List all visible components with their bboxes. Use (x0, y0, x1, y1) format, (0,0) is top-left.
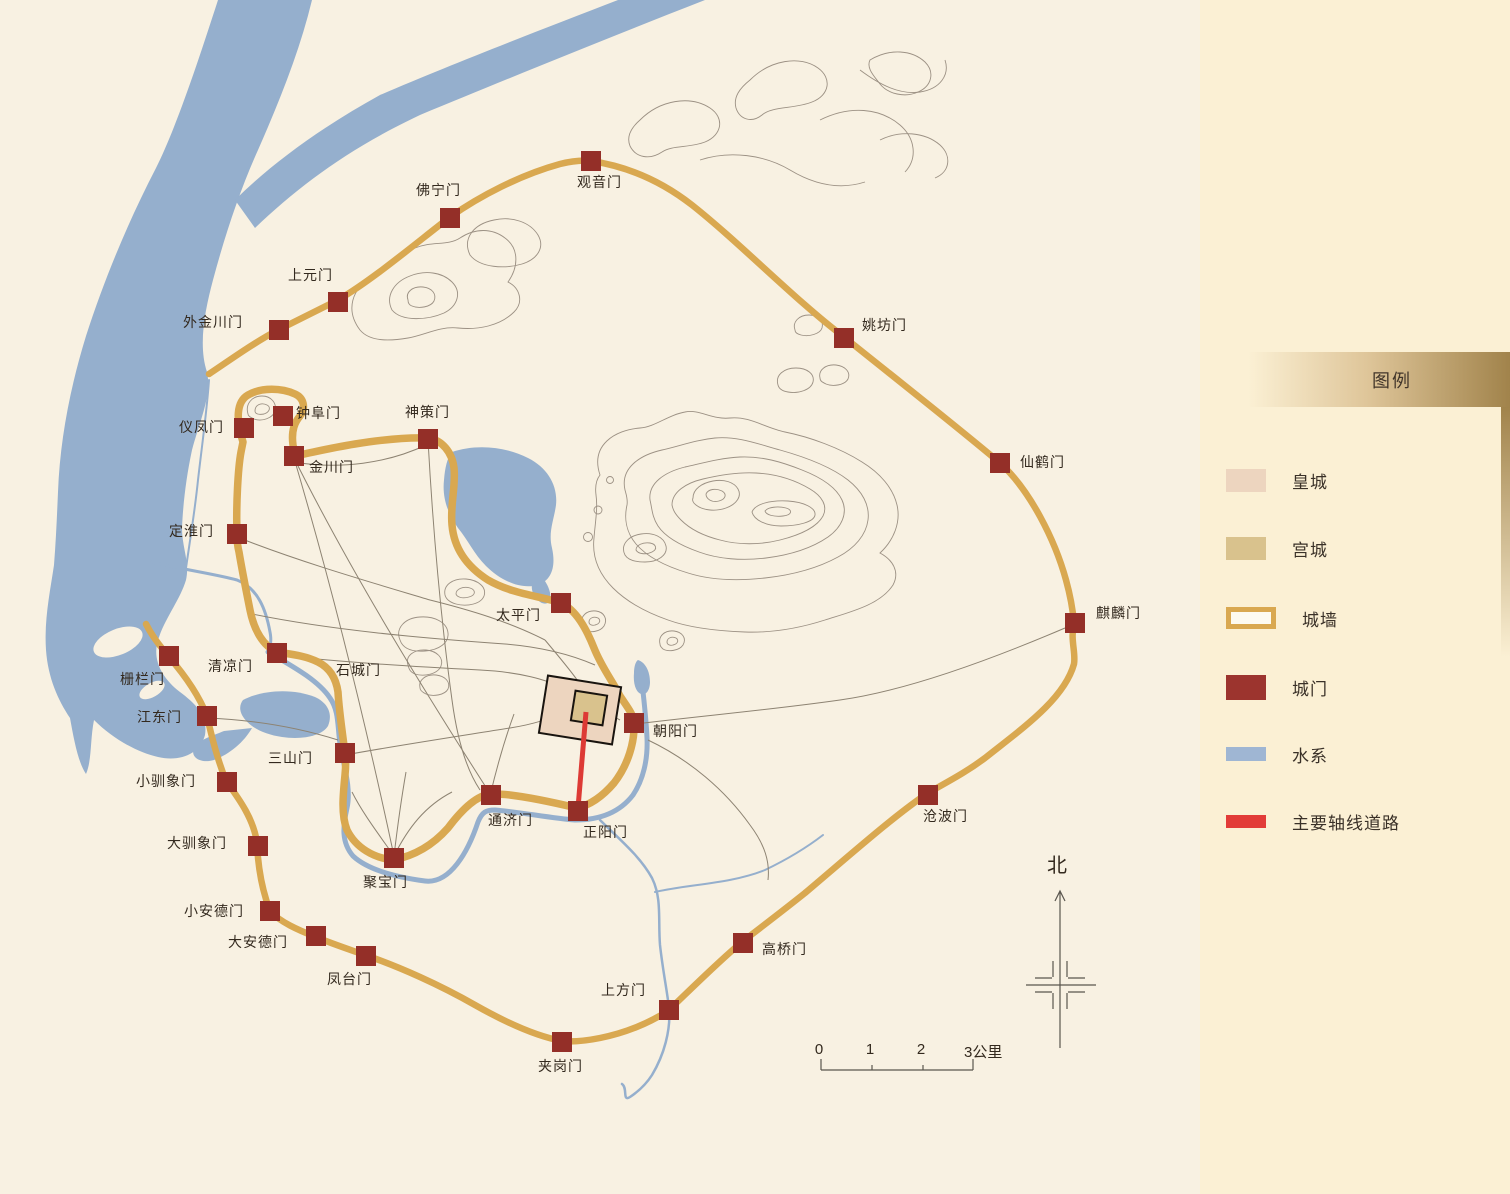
legend-item-label: 宫城 (1292, 536, 1328, 561)
city-gate-marker (267, 643, 287, 663)
city-gate-marker (918, 785, 938, 805)
legend-item-axis-road: 主要轴线道路 (1226, 807, 1400, 835)
gate-label: 大安德门 (228, 935, 288, 950)
gate-label: 佛宁门 (416, 183, 461, 198)
legend-item-palace-city: 宫城 (1226, 534, 1328, 562)
legend-item-imperial-city: 皇城 (1226, 466, 1328, 494)
city-gate-marker (248, 836, 268, 856)
legend-item-water-system: 水系 (1226, 740, 1328, 768)
gate-label: 定淮门 (169, 524, 214, 539)
legend-title: 图例 (1372, 367, 1412, 393)
gate-label: 神策门 (405, 405, 450, 420)
imperial-city-swatch (1226, 469, 1266, 492)
scale-tick-3: 3公里 (964, 1041, 1002, 1062)
water-system-swatch (1226, 747, 1266, 761)
gate-label: 栅栏门 (120, 672, 165, 687)
river-branch-north (235, 0, 705, 228)
city-gate-marker (217, 772, 237, 792)
city-gate-marker (335, 743, 355, 763)
legend-panel: 图例 皇城 宫城 城墙 城门 水系 主要轴线道路 (1200, 0, 1510, 1194)
gate-label: 观音门 (577, 175, 622, 190)
gate-label: 聚宝门 (363, 875, 408, 890)
city-gate-marker (306, 926, 326, 946)
city-gate-marker (551, 593, 571, 613)
imperial-palace-area (539, 676, 621, 745)
city-gate-marker (552, 1032, 572, 1052)
gate-label: 太平门 (496, 608, 541, 623)
gate-label: 小驯象门 (136, 774, 196, 789)
legend-item-label: 城门 (1292, 675, 1328, 700)
gate-label: 上元门 (288, 268, 333, 283)
palace-city-area (571, 691, 607, 726)
gate-label: 夹岗门 (538, 1059, 583, 1074)
city-gate-marker (418, 429, 438, 449)
qinhuai-outflow (600, 820, 669, 1098)
city-gate-marker (356, 946, 376, 966)
city-gate-marker (568, 801, 588, 821)
city-gate-marker (481, 785, 501, 805)
city-gate-marker (197, 706, 217, 726)
city-gate-marker (990, 453, 1010, 473)
legend-item-city-wall: 城墙 (1226, 604, 1338, 632)
gate-label: 高桥门 (762, 942, 807, 957)
gate-label: 大驯象门 (167, 836, 227, 851)
city-gate-marker (384, 848, 404, 868)
gate-label: 仪凤门 (179, 420, 224, 435)
city-wall-swatch (1226, 607, 1276, 629)
mochou-lake (240, 691, 330, 738)
gate-label: 仙鹤门 (1020, 455, 1065, 470)
gate-label: 金川门 (309, 460, 354, 475)
xuanwu-lake (444, 447, 557, 586)
gate-label: 凤台门 (327, 972, 372, 987)
gate-label: 上方门 (601, 983, 646, 998)
gate-label: 石城门 (336, 663, 381, 678)
gate-label: 正阳门 (583, 825, 628, 840)
nanjing-city-wall-map: 观音门佛宁门上元门外金川门姚坊门仙鹤门麒麟门沧波门高桥门上方门夹岗门凤台门大安德… (0, 0, 1510, 1194)
legend-item-label: 城墙 (1302, 606, 1338, 631)
legend-item-label: 皇城 (1292, 468, 1328, 493)
city-gate-marker (581, 151, 601, 171)
legend-edge-shade (1501, 407, 1510, 657)
city-gate-marker (328, 292, 348, 312)
legend-item-label: 水系 (1292, 742, 1328, 767)
gate-label: 外金川门 (183, 315, 243, 330)
city-gate-marker (284, 446, 304, 466)
compass-icon (1026, 891, 1096, 1048)
axis-road-swatch (1226, 815, 1266, 828)
gate-label: 沧波门 (923, 809, 968, 824)
scale-tick-0: 0 (815, 1041, 823, 1058)
city-gate-marker (269, 320, 289, 340)
north-label: 北 (1047, 849, 1067, 878)
legend-header-band: 图例 (1248, 352, 1510, 407)
gate-label: 小安德门 (184, 904, 244, 919)
city-gate-marker (234, 418, 254, 438)
city-gate-marker (733, 933, 753, 953)
scale-bar (821, 1059, 973, 1070)
gate-label: 通济门 (488, 813, 533, 828)
city-gate-swatch (1226, 675, 1266, 700)
gate-label: 江东门 (137, 710, 182, 725)
gate-label: 姚坊门 (862, 318, 907, 333)
gate-label: 朝阳门 (653, 724, 698, 739)
scale-tick-2: 2 (917, 1041, 925, 1058)
outer-city-wall (146, 161, 1074, 1042)
city-gate-marker (273, 406, 293, 426)
water-system (46, 0, 705, 774)
city-gate-marker (227, 524, 247, 544)
legend-item-city-gate: 城门 (1226, 673, 1328, 701)
gate-label: 钟阜门 (296, 406, 341, 421)
gate-label: 清凉门 (208, 659, 253, 674)
legend-item-label: 主要轴线道路 (1292, 809, 1400, 834)
gate-label: 麒麟门 (1096, 606, 1141, 621)
gate-label: 三山门 (268, 751, 313, 766)
scale-tick-1: 1 (866, 1041, 874, 1058)
east-stream-branch (655, 835, 823, 892)
city-gate-marker (1065, 613, 1085, 633)
city-gate-marker (440, 208, 460, 228)
palace-city-swatch (1226, 537, 1266, 560)
city-gate-marker (659, 1000, 679, 1020)
city-gate-marker (260, 901, 280, 921)
city-gate-marker (834, 328, 854, 348)
city-gate-marker (624, 713, 644, 733)
city-gate-marker (159, 646, 179, 666)
